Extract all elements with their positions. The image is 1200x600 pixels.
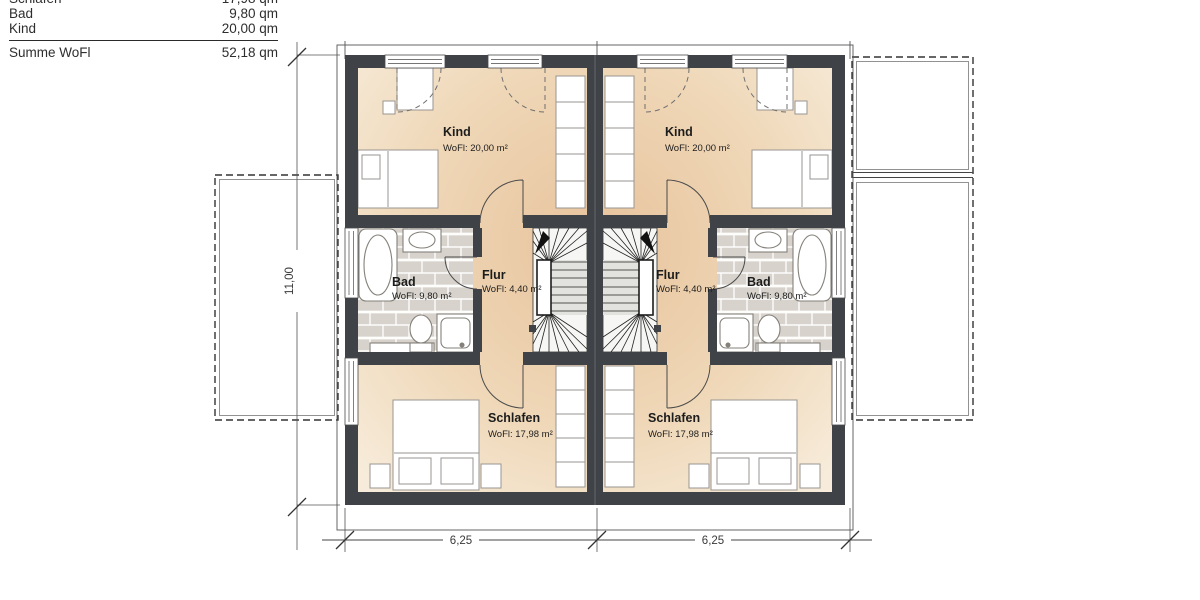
room-area-kind-right: WoFl: 20,00 m² — [665, 143, 730, 154]
room-label-kind-right: Kind — [665, 125, 693, 139]
nightstand-left-1 — [370, 464, 390, 488]
dimension-width-left-label: 6,25 — [450, 535, 472, 547]
window-schlafen-left — [345, 358, 358, 425]
dimension-width-right-label: 6,25 — [702, 535, 724, 547]
floorplan-page: Schlafen 17,98 qm Bad 9,80 qm Kind 20,00… — [0, 0, 1200, 600]
room-label-flur-right: Flur — [656, 268, 680, 282]
nightstand-right-1 — [689, 464, 709, 488]
room-label-bad-right: Bad — [747, 275, 771, 289]
floor-plan: Kind WoFl: 20,00 m² Kind WoFl: 20,00 m² … — [0, 0, 1200, 600]
window-kind-right-2 — [732, 55, 787, 68]
room-area-flur-left: WoFl: 4,40 m² — [482, 284, 541, 295]
desk-left — [397, 68, 433, 110]
room-area-schlafen-left: WoFl: 17,98 m² — [488, 429, 553, 440]
pillow-kind-right — [810, 155, 828, 179]
chair-right — [795, 101, 807, 114]
room-label-flur-left: Flur — [482, 268, 506, 282]
window-bad-left — [345, 228, 358, 298]
room-area-kind-left: WoFl: 20,00 m² — [443, 143, 508, 154]
toilet-right — [758, 315, 780, 343]
room-label-bad-left: Bad — [392, 275, 416, 289]
room-area-flur-right: WoFl: 4,40 m² — [656, 284, 715, 295]
annex-left-dashed-outline — [215, 175, 338, 420]
pillow-right-2 — [759, 458, 791, 484]
room-area-schlafen-right: WoFl: 17,98 m² — [648, 429, 713, 440]
desk-right — [757, 68, 793, 110]
shelf-kind-left — [556, 76, 585, 208]
stair-post-right — [654, 325, 661, 332]
pillow-right-1 — [717, 458, 749, 484]
window-kind-right-1 — [637, 55, 688, 68]
window-bad-right — [832, 228, 845, 298]
window-schlafen-right — [832, 358, 845, 425]
chair-left — [383, 101, 395, 114]
annex-right-dashed-outline — [852, 57, 973, 420]
shelf-kind-right — [605, 76, 634, 208]
wardrobe-right — [605, 366, 634, 487]
dimension-left: 11,00 — [284, 42, 340, 550]
window-kind-left-2 — [488, 55, 542, 68]
pillow-left-1 — [399, 458, 431, 484]
wardrobe-left — [556, 366, 585, 487]
pillow-kind-left — [362, 155, 380, 179]
room-label-schlafen-right: Schlafen — [648, 411, 700, 425]
room-label-schlafen-left: Schlafen — [488, 411, 540, 425]
dimension-depth-label: 11,00 — [284, 267, 296, 295]
stair-newel-right — [639, 260, 653, 315]
nightstand-left-2 — [481, 464, 501, 488]
room-area-bad-right: WoFl: 9,80 m² — [747, 291, 806, 302]
toilet-left — [410, 315, 432, 343]
room-area-bad-left: WoFl: 9,80 m² — [392, 291, 451, 302]
pillow-left-2 — [441, 458, 473, 484]
room-label-kind-left: Kind — [443, 125, 471, 139]
stair-post-left — [529, 325, 536, 332]
window-kind-left-1 — [385, 55, 445, 68]
stairs-right — [603, 228, 661, 352]
nightstand-right-2 — [800, 464, 820, 488]
